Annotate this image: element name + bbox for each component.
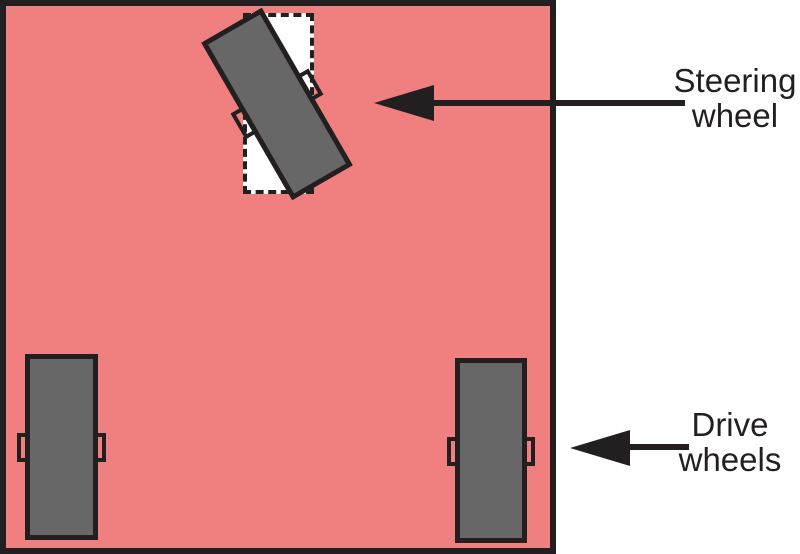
axle-tab-icon: [522, 437, 535, 466]
drive-wheels-label: Drive wheels: [655, 407, 800, 477]
axle-tab-icon: [93, 433, 106, 462]
arrow-left-icon: [570, 430, 630, 466]
drive-wheel-right: [455, 358, 527, 543]
axle-tab-icon: [447, 437, 460, 466]
axle-tab-icon: [17, 433, 30, 462]
arrow-left-icon: [374, 85, 434, 121]
diagram-canvas: Steering wheel Drive wheels: [0, 0, 800, 554]
steering-wheel-label: Steering wheel: [660, 63, 800, 133]
drive-wheel-left: [25, 354, 98, 540]
steering-arrow-line: [430, 100, 685, 106]
